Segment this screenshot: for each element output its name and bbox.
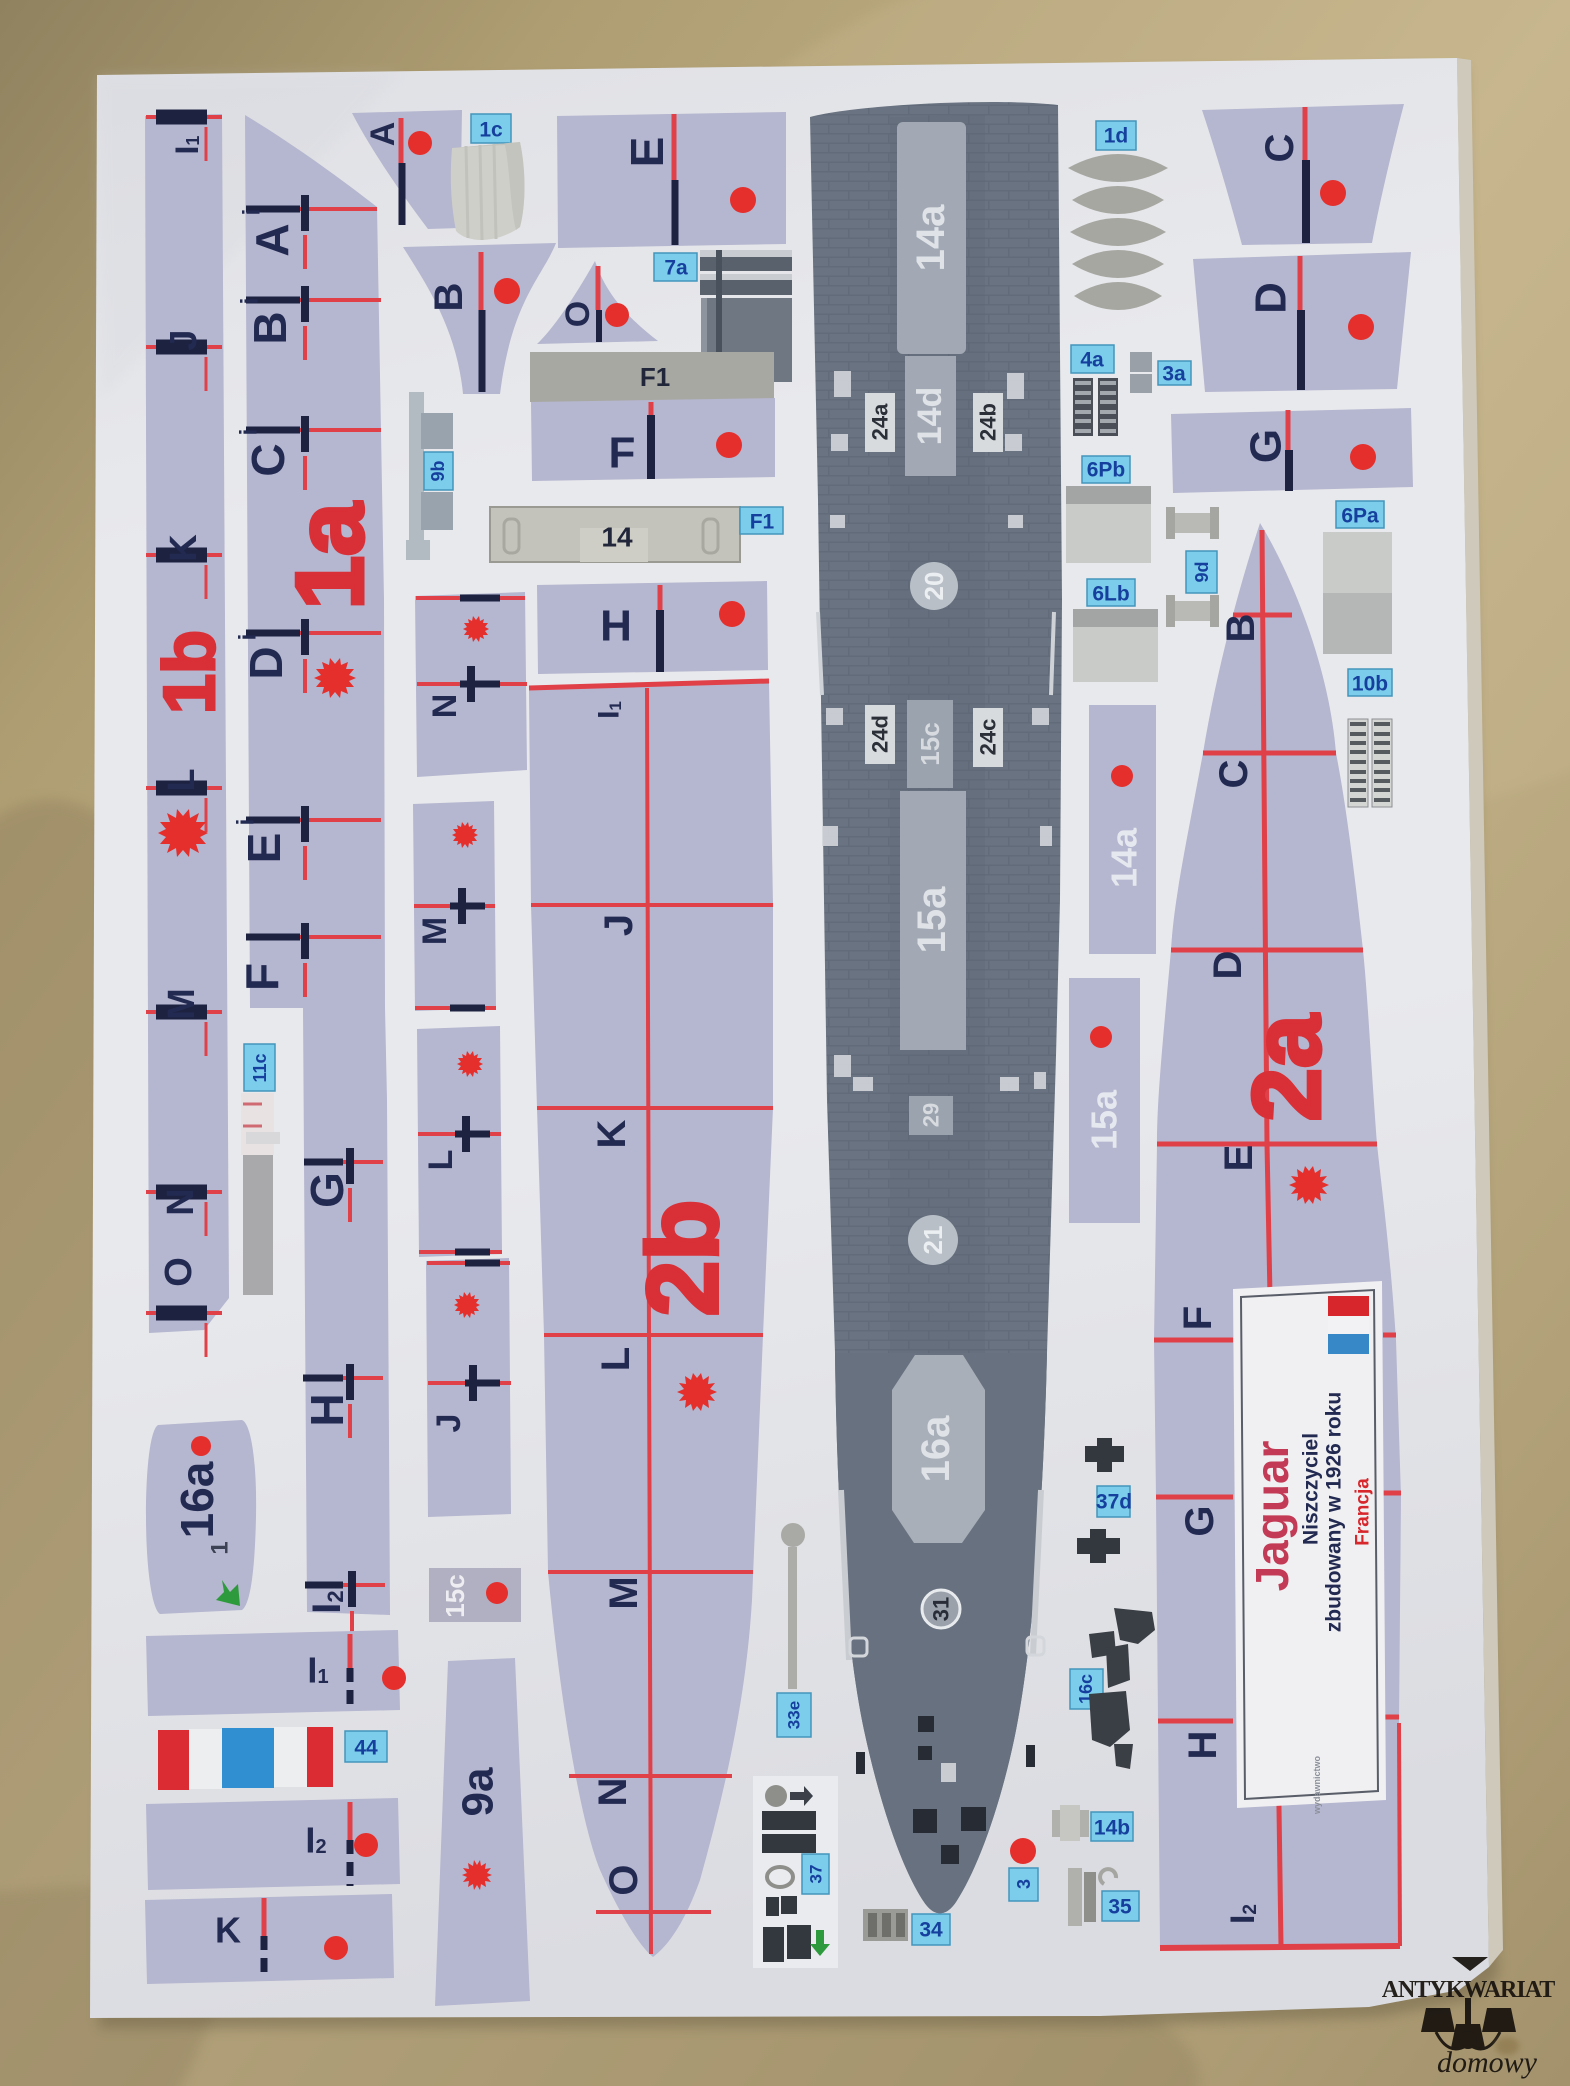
svg-text:G: G (1242, 429, 1291, 463)
svg-text:24a: 24a (868, 403, 893, 440)
svg-text:14: 14 (601, 522, 633, 553)
svg-text:F: F (609, 429, 636, 478)
svg-text:N: N (426, 694, 464, 719)
svg-text:D: D (1247, 282, 1296, 314)
svg-text:37d: 37d (1096, 1491, 1132, 1514)
svg-text:6Pa: 6Pa (1341, 505, 1379, 528)
svg-text:15c: 15c (440, 1574, 470, 1617)
svg-text:K: K (215, 1910, 241, 1951)
svg-text:F1: F1 (750, 511, 775, 534)
svg-text:Jaguar: Jaguar (1246, 1440, 1298, 1591)
svg-text:D: D (1206, 951, 1250, 980)
svg-text:1: 1 (207, 1541, 234, 1554)
svg-text:i: i (235, 634, 262, 641)
svg-text:16a: 16a (171, 1461, 223, 1538)
svg-text:4a: 4a (1080, 349, 1104, 372)
svg-text:6Lb: 6Lb (1092, 583, 1129, 606)
svg-text:J: J (597, 914, 641, 936)
svg-text:i: i (233, 819, 260, 826)
svg-text:1c: 1c (479, 119, 503, 142)
svg-text:14a: 14a (1104, 827, 1145, 888)
svg-text:24c: 24c (976, 719, 1001, 756)
svg-text:37: 37 (807, 1865, 826, 1884)
svg-text:1a: 1a (277, 502, 384, 609)
svg-text:44: 44 (354, 1737, 378, 1760)
svg-text:34: 34 (919, 1919, 943, 1942)
svg-text:K: K (163, 534, 205, 562)
svg-text:1b: 1b (150, 630, 230, 714)
svg-text:H: H (301, 1393, 353, 1426)
svg-text:L: L (161, 768, 203, 791)
svg-text:B: B (1219, 614, 1263, 643)
svg-text:3: 3 (1014, 1879, 1034, 1889)
svg-text:D: D (240, 646, 292, 679)
svg-text:C: C (1212, 760, 1256, 789)
svg-text:B: B (427, 283, 471, 312)
svg-text:14b: 14b (1094, 1817, 1130, 1840)
svg-text:1d: 1d (1104, 125, 1129, 148)
svg-text:A: A (364, 122, 402, 147)
svg-text:31: 31 (929, 1597, 954, 1621)
svg-text:A: A (246, 223, 298, 256)
svg-text:24b: 24b (976, 403, 1001, 441)
svg-text:zbudowany w 1926 roku: zbudowany w 1926 roku (1323, 1392, 1346, 1632)
svg-text:F: F (236, 963, 288, 991)
svg-text:6Pb: 6Pb (1087, 459, 1126, 482)
svg-text:i: i (239, 209, 266, 216)
svg-text:B: B (244, 311, 296, 344)
svg-text:H: H (1181, 1731, 1225, 1760)
svg-text:F1: F1 (640, 362, 670, 392)
svg-text:2b: 2b (627, 1200, 739, 1317)
svg-text:15c: 15c (915, 722, 945, 765)
svg-text:Francja: Francja (1353, 1478, 1374, 1546)
svg-text:33e: 33e (785, 1701, 804, 1729)
svg-text:15a: 15a (910, 886, 954, 953)
svg-text:14d: 14d (911, 387, 949, 446)
svg-text:i: i (236, 429, 263, 436)
svg-text:29: 29 (919, 1103, 944, 1127)
svg-text:C: C (1258, 134, 1302, 163)
svg-text:M: M (161, 988, 203, 1020)
svg-text:24d: 24d (868, 715, 893, 753)
svg-text:wydawnictwo: wydawnictwo (1312, 1755, 1322, 1815)
svg-text:9b: 9b (428, 460, 448, 481)
svg-text:E: E (1217, 1145, 1261, 1172)
svg-text:14a: 14a (909, 204, 953, 271)
svg-text:2a: 2a (1234, 1014, 1341, 1121)
svg-text:10b: 10b (1352, 673, 1388, 696)
svg-text:G: G (301, 1172, 353, 1208)
svg-text:J: J (430, 1414, 468, 1433)
svg-text:N: N (591, 1778, 635, 1807)
svg-text:H: H (600, 602, 632, 651)
svg-text:20: 20 (919, 572, 949, 601)
svg-text:M: M (602, 1576, 646, 1609)
svg-text:15a: 15a (1084, 1089, 1125, 1150)
svg-text:J: J (163, 329, 205, 350)
svg-text:L: L (422, 1150, 460, 1171)
svg-text:O: O (559, 301, 597, 327)
svg-text:E: E (238, 833, 290, 864)
svg-text:E: E (621, 137, 673, 168)
svg-text:21: 21 (918, 1226, 948, 1255)
svg-text:i: i (237, 298, 264, 305)
svg-text:9d: 9d (1192, 561, 1212, 582)
svg-text:domowy: domowy (1437, 2046, 1538, 2079)
svg-text:N: N (160, 1188, 202, 1215)
svg-text:F: F (1176, 1306, 1220, 1330)
svg-text:O: O (602, 1864, 646, 1895)
svg-text:16a: 16a (914, 1415, 958, 1482)
svg-text:L: L (594, 1347, 638, 1371)
svg-text:3a: 3a (1162, 363, 1186, 386)
svg-text:C: C (242, 443, 294, 476)
svg-text:O: O (158, 1257, 200, 1287)
svg-text:Niszczyciel: Niszczyciel (1300, 1433, 1323, 1545)
svg-text:9a: 9a (454, 1767, 503, 1816)
svg-text:11c: 11c (250, 1053, 270, 1082)
svg-text:35: 35 (1108, 1896, 1132, 1919)
svg-text:G: G (1178, 1505, 1222, 1536)
svg-text:M: M (416, 917, 454, 945)
svg-text:K: K (590, 1119, 634, 1148)
svg-text:7a: 7a (664, 257, 688, 280)
